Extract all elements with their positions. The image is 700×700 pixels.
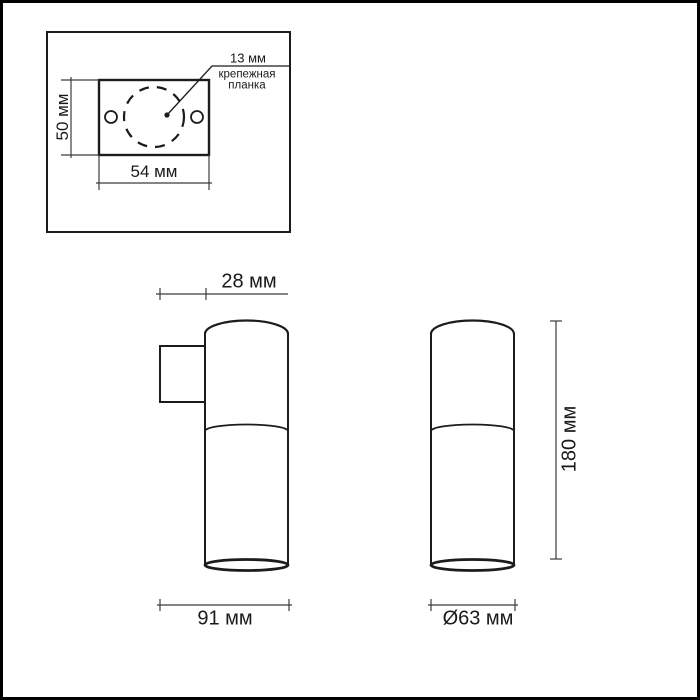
drawing-lineart	[3, 3, 700, 700]
drawing-frame: 13 мм крепежная планка 50 мм 54 мм 28 мм…	[0, 0, 700, 700]
label-mounting-plate: крепежная планка	[219, 70, 276, 91]
side-cylinder-top-arc	[205, 321, 288, 335]
label-180mm: 180 мм	[559, 406, 582, 472]
label-50mm: 50 мм	[53, 93, 73, 140]
label-diameter-63mm: Ø63 мм	[443, 608, 514, 631]
dashed-circle	[124, 87, 184, 147]
front-view-body	[431, 321, 514, 571]
screw-hole-right	[191, 111, 203, 123]
label-28mm: 28 мм	[221, 271, 276, 294]
screw-hole-left	[105, 111, 117, 123]
front-cylinder-bottom-rim	[431, 560, 514, 571]
front-cylinder-seam-arc	[431, 425, 514, 432]
mounting-plate-outline	[99, 80, 209, 155]
label-91mm: 91 мм	[197, 608, 252, 631]
side-view-body	[160, 321, 288, 571]
side-cylinder-seam-arc	[205, 425, 288, 432]
side-cylinder-bottom-rim	[205, 560, 288, 571]
front-cylinder-top-arc	[431, 321, 514, 335]
label-54mm: 54 мм	[130, 162, 177, 182]
label-13mm: 13 мм	[230, 51, 266, 66]
wall-bracket-outline	[160, 346, 205, 402]
